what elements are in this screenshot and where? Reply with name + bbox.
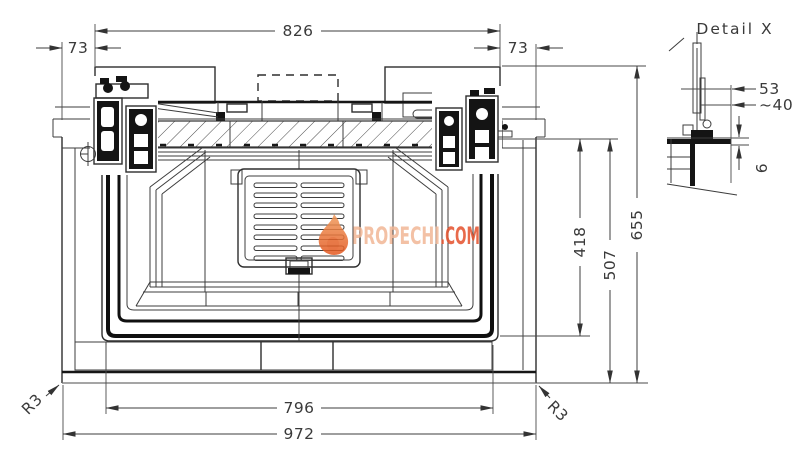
air-grille — [231, 169, 367, 274]
detail-knob — [703, 120, 711, 128]
right-hinge-mechanism — [432, 86, 512, 174]
detail-cabinet-edge — [690, 144, 695, 186]
dim-label-796: 796 — [283, 399, 314, 417]
watermark-suffix: .COM — [440, 222, 480, 250]
dim-total-height: 655 — [628, 66, 646, 383]
grille-tab-left — [231, 170, 242, 184]
flue-outline-dashed — [258, 75, 338, 101]
watermark-brand: PROPECHI — [352, 222, 440, 250]
dim-label-826: 826 — [282, 22, 313, 40]
dim-label-418: 418 — [571, 226, 589, 257]
dim-label-507: 507 — [601, 249, 619, 280]
right-vent-slot — [352, 104, 372, 112]
watermark-text: PROPECHI.COM — [352, 222, 480, 250]
dim-label-655: 655 — [628, 209, 646, 240]
dim-label-40: ~40 — [759, 96, 793, 114]
dim-offset-left: 73 — [36, 39, 121, 57]
detail-structure — [667, 32, 737, 195]
drawing-page: 826 73 73 418 507 65 — [0, 0, 800, 463]
detail-countertop — [667, 139, 731, 144]
flame-core — [327, 237, 339, 251]
grille-tab-right — [356, 170, 367, 184]
dim-label-73-left: 73 — [68, 39, 89, 57]
radius-callout-right: R3 — [539, 386, 572, 425]
dim-label-r3-left: R3 — [18, 390, 46, 418]
dim-label-73-right: 73 — [508, 39, 529, 57]
dim-offset-right: 73 — [474, 39, 563, 57]
detail-break-line — [667, 184, 737, 195]
radius-callout-left: R3 — [18, 385, 59, 418]
dim-base-width: 796 — [106, 399, 493, 417]
base-band — [75, 342, 492, 370]
watermark: PROPECHI.COM — [319, 214, 480, 255]
left-vent-slot — [227, 104, 247, 112]
detail-title: Detail X — [696, 20, 773, 38]
dim-label-r3-right: R3 — [544, 397, 572, 425]
dim-label-6: 6 — [753, 163, 771, 173]
detail-leader — [669, 38, 684, 51]
fireplace-insert-technical-drawing: 826 73 73 418 507 65 — [0, 0, 800, 463]
dim-total-width: 972 — [63, 425, 536, 443]
dim-top-width: 826 — [95, 22, 500, 40]
detail-x-view: Detail X 53 ~40 — [667, 20, 793, 195]
dim-label-972: 972 — [283, 425, 314, 443]
dim-opening-height: 418 — [571, 139, 589, 336]
dim-body-height: 507 — [601, 139, 619, 383]
plate-foot-right — [372, 112, 381, 121]
mount-bolt — [502, 124, 508, 130]
left-hinge-mechanism — [90, 76, 158, 175]
